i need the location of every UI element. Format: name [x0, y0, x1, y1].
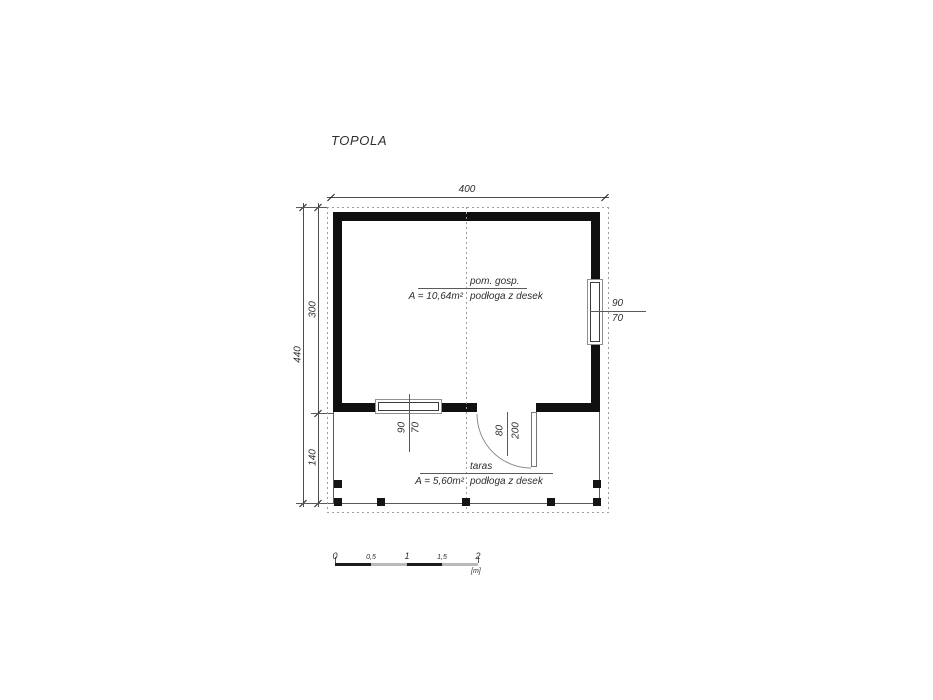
terrace-post: [593, 498, 601, 506]
door-callout-line: [507, 412, 508, 456]
dim-terrace-height-label: 140: [308, 446, 319, 470]
scale-label-2: 2: [468, 551, 488, 561]
terrace-post: [334, 498, 342, 506]
dim-connector: [311, 413, 333, 414]
terrace-window-width: 90: [397, 417, 408, 439]
right-window-callout-line: [590, 311, 646, 312]
terrace-name: taras: [470, 461, 492, 472]
terrace-outline-right: [599, 412, 600, 503]
dim-top-label: 400: [447, 184, 487, 195]
terrace-floor: podłoga z desek: [470, 476, 543, 487]
right-window-height: 70: [612, 313, 623, 324]
terrace-post: [462, 498, 470, 506]
scale-label-0: 0: [325, 551, 345, 561]
dim-line-top: [327, 197, 609, 198]
room-name: pom. gosp.: [470, 276, 519, 287]
scale-label-15: 1,5: [432, 554, 452, 561]
right-window-width: 90: [612, 298, 623, 309]
right-window: [587, 279, 603, 345]
terrace-window-height: 70: [411, 417, 422, 439]
terrace-outline-left: [333, 412, 334, 503]
window-glass: [590, 282, 600, 342]
terrace-area: A = 5,60m²: [364, 476, 464, 487]
terrace-post: [547, 498, 555, 506]
dim-connector: [296, 207, 328, 208]
terrace-post: [377, 498, 385, 506]
terrace-post: [593, 480, 601, 488]
scale-label-1: 1: [397, 551, 417, 561]
room-label-line: [418, 288, 527, 289]
room-floor: podłoga z desek: [470, 291, 543, 302]
door-opening: [477, 403, 536, 412]
terrace-label-line: [420, 473, 553, 474]
scale-unit: [m]: [471, 568, 481, 575]
center-axis-line: [466, 207, 467, 512]
dim-room-height-label: 300: [308, 298, 319, 322]
room-area: A = 10,64m²: [363, 291, 463, 302]
dim-left-total-label: 440: [293, 343, 304, 367]
plan-title: TOPOLA: [331, 133, 387, 148]
terrace-post: [334, 480, 342, 488]
door-height: 200: [511, 417, 522, 445]
door-width: 80: [495, 420, 506, 442]
floor-plan-drawing: TOPOLA 400 440 300 140: [0, 0, 933, 700]
scale-label-05: 0,5: [361, 554, 381, 561]
